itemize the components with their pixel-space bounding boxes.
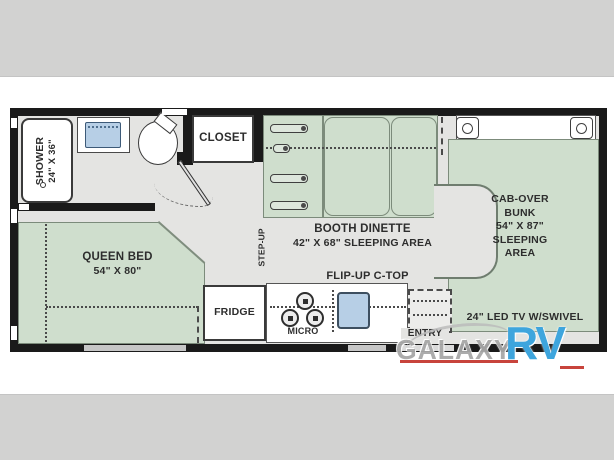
fridge-label: FRIDGE [203,306,266,319]
closet-left-wall [183,115,192,165]
kitchen-sink-icon [337,292,370,329]
bed-fold-line [46,306,198,308]
wall-notch [11,209,17,223]
micro-label: MICRO [281,326,325,337]
bathroom-sink-icon [85,122,121,148]
bunk-label: CAB-OVER BUNK 54" X 87" SLEEPING AREA [458,193,582,261]
dinette-table-support-icon [270,174,308,183]
shower-name: SHOWER [34,137,46,185]
flip-up-ctop-label: FLIP-UP C-TOP [310,270,425,284]
cab-window-bracket-icon [456,117,479,139]
footer-band [0,394,614,460]
watermark-underline-small [560,366,584,369]
closet-label: CLOSET [192,131,254,145]
dinette-name: BOOTH DINETTE [314,223,411,235]
dinette-table-support-icon [270,201,308,210]
dinette-cushion [324,117,390,216]
stove-burner-icon [306,309,324,327]
stove-burner-icon [281,309,299,327]
wall-notch [19,204,29,210]
shower-size: 24" X 36" [47,139,58,183]
step-up-label: STEP-UP [257,225,268,269]
queen-bed-label: QUEEN BED 54" X 80" [60,250,175,279]
wall-notch [11,118,17,128]
bedroom-window [84,345,186,351]
aisle-divider-line [441,117,443,155]
shower-label: SHOWER 24" X 36" [34,121,60,201]
window-over-toilet [162,109,187,115]
kitchen-window [348,345,386,351]
bathroom-wall [17,203,155,211]
bed-fold-line [197,306,199,343]
dinette-fold-line [266,147,436,149]
shower-drain-icon [40,182,46,188]
dinette-table-support-icon [270,124,308,133]
counter-fold-line [332,290,334,332]
dinette-cushion [391,117,437,216]
queen-bed-size: 54" X 80" [94,265,142,277]
header-band [0,0,614,77]
dinette-table-support-icon [273,144,290,153]
dinette-size: 42" X 68" SLEEPING AREA [293,237,432,249]
wall-notch [11,326,17,340]
page-background: SHOWER 24" X 36" CLOSET BOOTH DINETTE 42… [0,0,614,460]
watermark-underline [400,360,518,363]
stove-burner-icon [296,292,314,310]
dinette-label: BOOTH DINETTE 42" X 68" SLEEPING AREA [280,222,445,251]
bed-fold-line [45,224,47,342]
queen-bed-name: QUEEN BED [82,251,152,263]
cab-window-bracket-icon [570,117,593,139]
